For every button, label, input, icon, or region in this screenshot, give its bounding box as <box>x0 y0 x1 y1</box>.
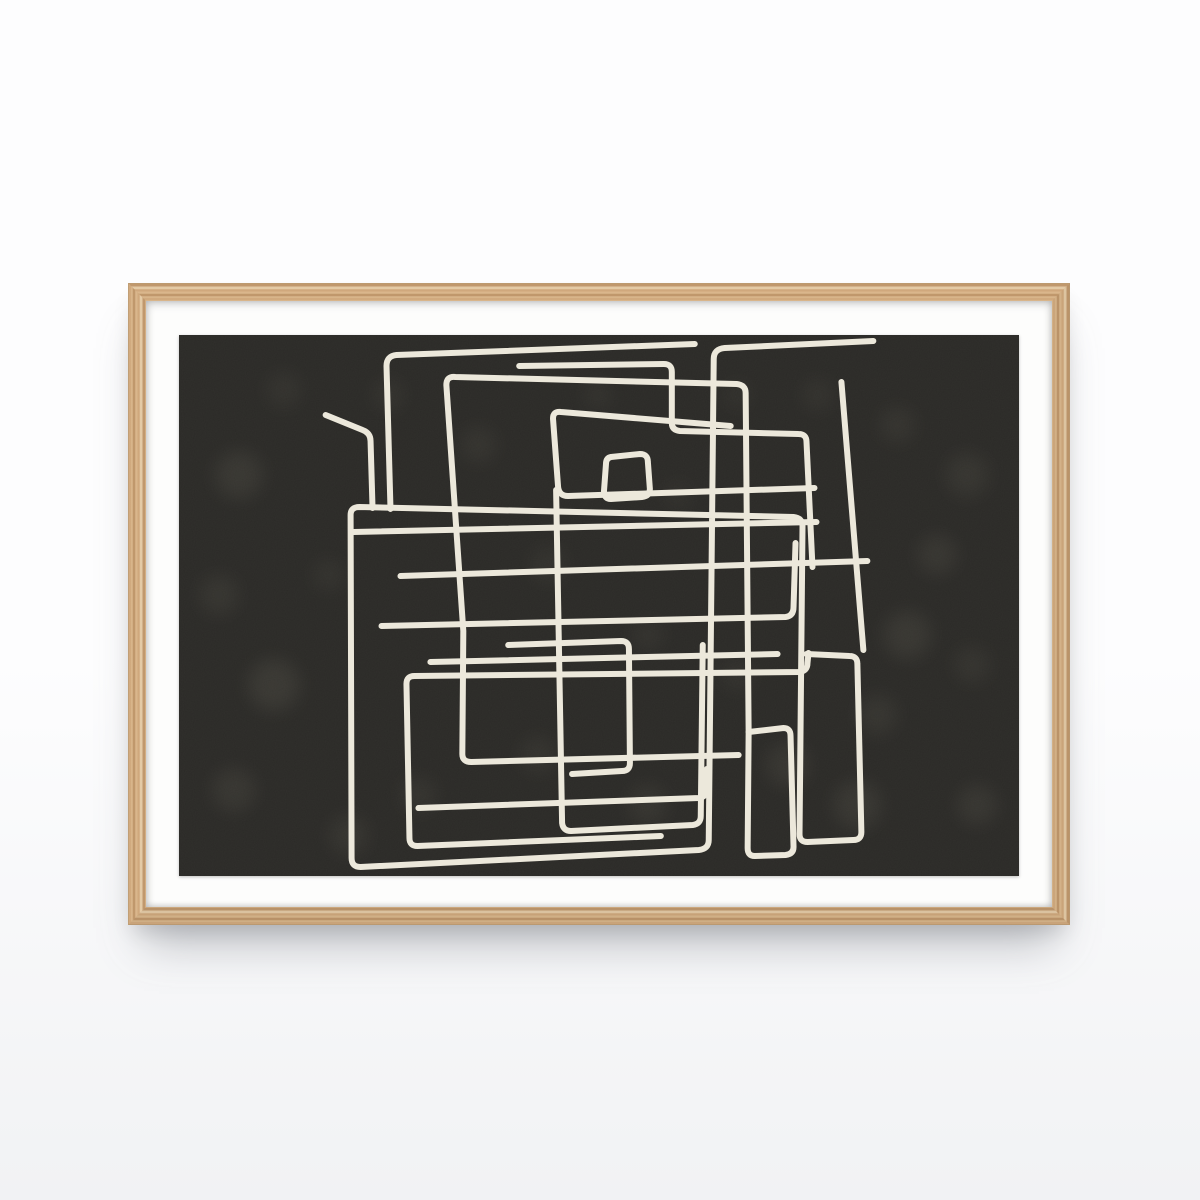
picture-frame <box>128 283 1070 925</box>
scene: { "scene": { "description": "Product pho… <box>0 0 1200 1200</box>
artwork-canvas <box>179 335 1019 876</box>
mat <box>146 301 1052 907</box>
frame-side-top <box>128 283 1070 301</box>
frame-side-left <box>128 283 146 925</box>
frame-side-right <box>1052 283 1070 925</box>
frame-side-bottom <box>128 907 1070 925</box>
maze-line-art <box>179 335 1019 876</box>
